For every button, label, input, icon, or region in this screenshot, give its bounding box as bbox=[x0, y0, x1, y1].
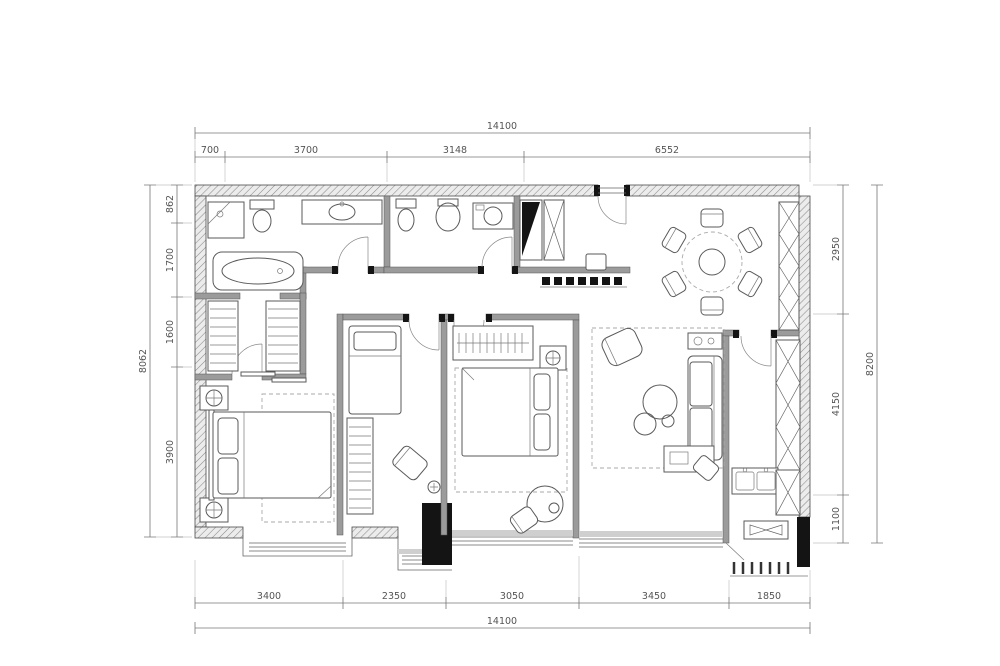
stool-icon bbox=[586, 254, 606, 270]
dim-right-overall: 8200 bbox=[865, 185, 883, 543]
door-entry bbox=[598, 196, 626, 224]
dim-top-seg-0: 700 bbox=[201, 145, 219, 156]
nightstand-icon bbox=[540, 346, 566, 370]
hallway-bench-icon bbox=[540, 277, 627, 287]
dim-left-seg-0: 862 bbox=[165, 195, 176, 213]
sofa-icon bbox=[688, 356, 722, 460]
dining-chair-icon bbox=[661, 270, 688, 298]
dim-right-seg-1: 4150 bbox=[831, 392, 842, 416]
dining-chair-icon bbox=[737, 226, 764, 254]
dim-right-seg-0: 2950 bbox=[831, 237, 842, 261]
pedestal-sink-icon bbox=[436, 199, 460, 231]
door-kitchen bbox=[741, 336, 771, 366]
dim-bottom-seg-3: 3450 bbox=[642, 591, 666, 602]
double-bed-icon bbox=[209, 410, 331, 500]
dim-bottom-seg-4: 1850 bbox=[757, 591, 781, 602]
living-room bbox=[592, 326, 724, 482]
ac-unit-icon bbox=[744, 521, 788, 539]
shoe-cabinet-icon bbox=[520, 200, 542, 260]
dining-chair-icon bbox=[701, 297, 723, 315]
dining-chair-icon bbox=[661, 226, 688, 254]
floor-plan-canvas: 14100 700 3700 3148 6552 8062 862 1700 1… bbox=[0, 0, 1000, 666]
dim-left-seg-1: 1700 bbox=[165, 248, 176, 272]
entry-foyer bbox=[520, 200, 627, 287]
dim-left-seg-2: 1600 bbox=[165, 320, 176, 344]
base-cabinet-icon bbox=[776, 470, 800, 515]
wall-right bbox=[799, 196, 810, 517]
wardrobe-icon bbox=[453, 326, 533, 360]
dim-bottom-seg-1: 2350 bbox=[382, 591, 406, 602]
dim-left-segments: 862 1700 1600 3900 bbox=[156, 185, 192, 537]
dim-top-seg-3: 6552 bbox=[655, 145, 679, 156]
dim-left-overall: 8062 bbox=[138, 185, 156, 537]
door-bath2 bbox=[482, 237, 512, 267]
louver-vent bbox=[726, 543, 808, 576]
dim-right-overall-label: 8200 bbox=[865, 352, 876, 376]
master-bathroom bbox=[208, 200, 382, 290]
bedroom-2 bbox=[347, 326, 440, 514]
dining-chair-icon bbox=[701, 209, 723, 227]
toilet-icon bbox=[396, 199, 416, 231]
dim-left-seg-3: 3900 bbox=[165, 440, 176, 464]
shelf-unit-icon bbox=[347, 418, 373, 514]
dining-area bbox=[661, 202, 799, 330]
vanity-sink-icon bbox=[302, 200, 382, 224]
dim-top-seg-1: 3700 bbox=[294, 145, 318, 156]
kitchen bbox=[732, 340, 800, 515]
door-master-bath bbox=[338, 237, 368, 267]
second-bathroom bbox=[396, 199, 513, 231]
dim-bottom-seg-0: 3400 bbox=[257, 591, 281, 602]
dim-top-seg-2: 3148 bbox=[443, 145, 467, 156]
wall-top-right bbox=[626, 185, 799, 196]
wardrobe-right-icon bbox=[266, 301, 300, 371]
bay-window-master bbox=[243, 538, 352, 556]
armchair-icon bbox=[599, 326, 644, 368]
dim-bottom-overall: 14100 bbox=[195, 616, 810, 634]
wardrobe-left-icon bbox=[208, 301, 238, 371]
wall-left bbox=[195, 196, 206, 527]
wall-bottom-mid bbox=[352, 527, 398, 538]
dim-top-segments: 700 3700 3148 6552 bbox=[195, 139, 810, 182]
coffee-table-icon bbox=[634, 385, 677, 435]
bedroom-3 bbox=[453, 326, 567, 535]
dim-right-seg-2: 1100 bbox=[831, 507, 842, 531]
washer-icon bbox=[473, 203, 513, 229]
console-table-icon bbox=[688, 333, 722, 349]
balcony bbox=[744, 521, 788, 539]
shear-wall-bottom-right bbox=[797, 517, 810, 567]
window-bedroom3 bbox=[452, 530, 573, 545]
shower-icon bbox=[208, 202, 244, 238]
structural-column bbox=[422, 503, 452, 565]
dim-right-segments: 2950 4150 1100 bbox=[813, 185, 849, 543]
storage-cabinets-icon bbox=[779, 202, 799, 330]
double-bed-icon bbox=[462, 368, 558, 456]
wall-top-left bbox=[195, 185, 598, 196]
tall-units-icon bbox=[776, 340, 800, 470]
dining-chair-icon bbox=[737, 270, 764, 298]
nightstand-icon bbox=[200, 386, 228, 410]
wall-bottom-left bbox=[195, 527, 243, 538]
bathtub-icon bbox=[213, 252, 303, 290]
nightstand-icon bbox=[200, 498, 228, 522]
entry-threshold bbox=[598, 188, 626, 193]
armchair-icon bbox=[391, 444, 429, 482]
tall-cabinet-icon bbox=[544, 200, 564, 260]
side-table-icon bbox=[428, 481, 440, 493]
dim-top-overall-label: 14100 bbox=[487, 121, 517, 132]
walk-in-closet bbox=[208, 301, 300, 371]
kitchen-sink-icon bbox=[732, 468, 778, 494]
door-bedroom2 bbox=[409, 320, 439, 350]
toilet-icon bbox=[250, 200, 274, 232]
window-living bbox=[579, 531, 723, 547]
dining-table-icon bbox=[682, 232, 742, 292]
dim-top-overall: 14100 bbox=[195, 121, 810, 139]
single-bed-icon bbox=[349, 326, 401, 414]
dim-bottom-seg-2: 3050 bbox=[500, 591, 524, 602]
dim-bottom-overall-label: 14100 bbox=[487, 616, 517, 627]
master-bedroom bbox=[200, 386, 334, 522]
floor-plan-drawing: 14100 700 3700 3148 6552 8062 862 1700 1… bbox=[0, 0, 1000, 666]
dim-left-overall-label: 8062 bbox=[138, 349, 149, 373]
dim-bottom-segments: 3400 2350 3050 3450 1850 bbox=[195, 556, 810, 609]
